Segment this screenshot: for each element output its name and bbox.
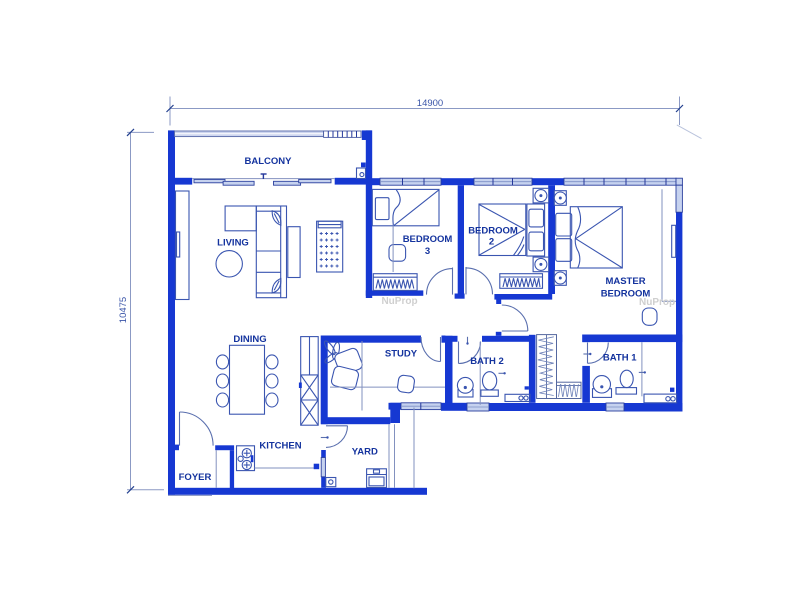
svg-text:STUDY: STUDY <box>385 349 418 360</box>
svg-text:14900: 14900 <box>417 98 443 109</box>
svg-text:DINING: DINING <box>233 334 266 345</box>
svg-text:2: 2 <box>489 237 494 248</box>
svg-text:3: 3 <box>425 246 430 257</box>
svg-text:NuProp: NuProp <box>639 297 675 308</box>
svg-text:BALCONY: BALCONY <box>245 156 293 167</box>
svg-text:FOYER: FOYER <box>179 472 212 483</box>
svg-text:BATH 2: BATH 2 <box>470 356 504 367</box>
svg-text:10475: 10475 <box>118 297 129 323</box>
svg-text:BEDROOM: BEDROOM <box>468 226 518 237</box>
svg-text:BEDROOM: BEDROOM <box>403 234 453 245</box>
svg-text:YARD: YARD <box>352 447 378 458</box>
svg-text:NuProp: NuProp <box>381 296 417 307</box>
svg-text:LIVING: LIVING <box>217 238 249 249</box>
svg-text:KITCHEN: KITCHEN <box>259 441 301 452</box>
svg-text:MASTER: MASTER <box>605 276 645 287</box>
svg-text:BATH 1: BATH 1 <box>603 353 637 364</box>
